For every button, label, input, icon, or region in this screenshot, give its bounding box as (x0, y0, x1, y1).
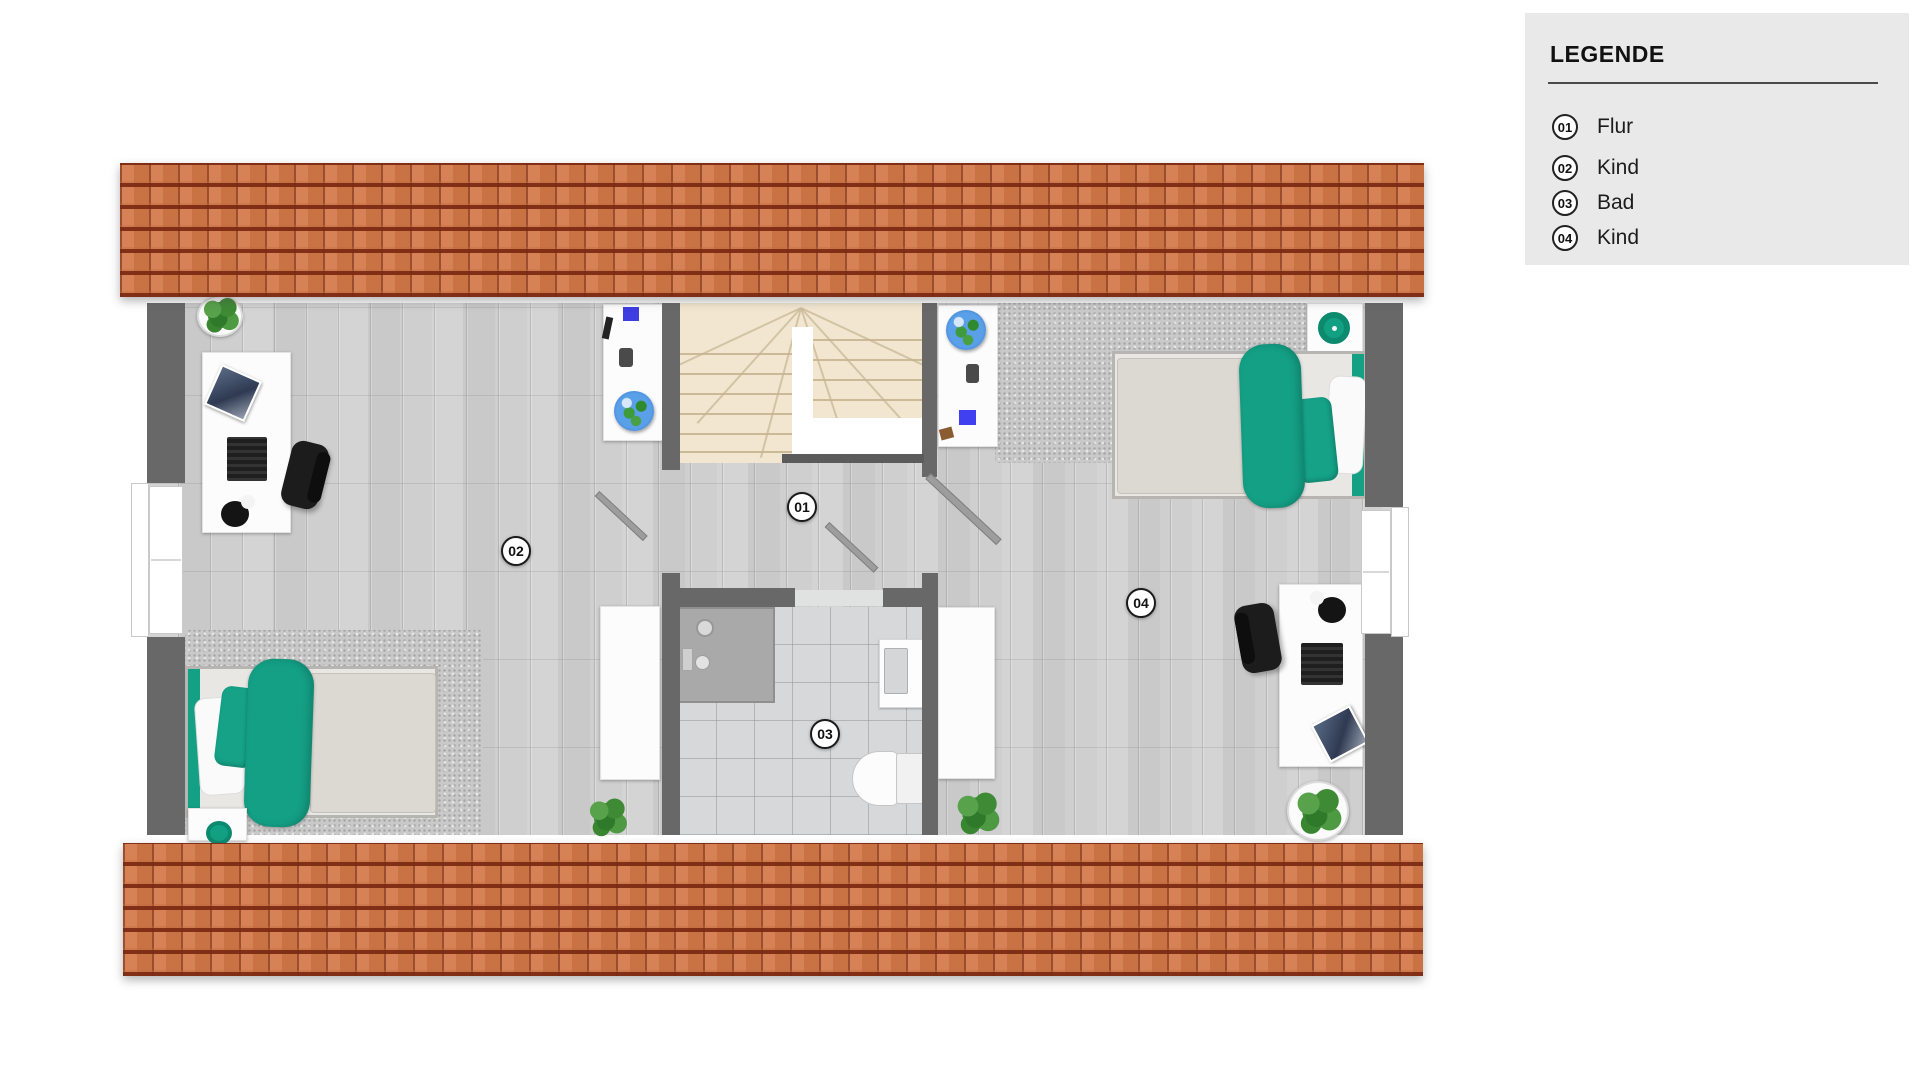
legend-number-badge: 01 (1552, 114, 1578, 140)
legend-item-bad: 03 Bad (1552, 190, 1634, 216)
legend-item-kind-1: 02 Kind (1552, 155, 1639, 181)
wall-left-bottom (147, 637, 185, 835)
bed-room-02 (185, 666, 438, 818)
stair-void (792, 327, 813, 463)
bed-room-04 (1112, 351, 1367, 499)
legend-number-badge: 04 (1552, 225, 1578, 251)
legend-item-kind-2: 04 Kind (1552, 225, 1639, 251)
room-marker-label: 02 (508, 543, 524, 559)
room-marker-label: 04 (1133, 595, 1149, 611)
nightstand-dot (1332, 326, 1337, 331)
shower-fixture-icon (682, 648, 693, 671)
pencil-case-icon (939, 427, 954, 441)
bed-mattress (310, 673, 436, 813)
wall-right-bottom (1365, 633, 1403, 835)
room-marker-label: 03 (817, 726, 833, 742)
bathroom-door-threshold (795, 590, 883, 606)
legend-divider (1548, 82, 1878, 84)
bed-blanket (243, 658, 315, 828)
legend-title: LEGENDE (1550, 41, 1665, 68)
sink-basin (884, 648, 908, 694)
wall-bathroom-left (662, 573, 680, 835)
desk-stair-right (938, 305, 998, 447)
legend-number-badge: 02 (1552, 155, 1578, 181)
room-marker-kind-left: 02 (501, 536, 531, 566)
bed-mattress (1117, 358, 1247, 494)
desk-lamp-shade (1310, 591, 1324, 605)
book-icon (623, 307, 639, 321)
plant-icon (200, 296, 242, 334)
wall-stairwell-right (922, 303, 937, 477)
legend-item-label: Kind (1597, 156, 1639, 180)
window-left (131, 483, 183, 637)
room-marker-bad: 03 (810, 719, 840, 749)
desk-room-04 (1279, 584, 1363, 767)
legend-item-label: Flur (1597, 115, 1633, 139)
wall-left-top (147, 303, 185, 483)
legend-item-label: Bad (1597, 191, 1634, 215)
legend-item-flur: 01 Flur (1552, 114, 1633, 140)
legend-panel: LEGENDE 01 Flur 02 Kind 03 Bad 04 Kind (1525, 13, 1909, 265)
wall-bathroom-right (922, 573, 938, 835)
wardrobe-room-04 (938, 607, 995, 779)
plant-icon (586, 796, 630, 838)
desk-lamp-shade (241, 495, 255, 509)
room-marker-label: 01 (794, 499, 810, 515)
wall-stairwell-left (662, 303, 680, 470)
wall-bathroom-top-right (883, 588, 922, 607)
magazine (204, 364, 262, 422)
bed-blanket (1238, 343, 1306, 509)
bathroom-sink (879, 639, 925, 708)
wall-bathroom-top-left (680, 588, 795, 607)
window-right (1361, 507, 1409, 637)
roof-top (120, 163, 1424, 297)
shower-head-icon (696, 619, 714, 637)
shower (678, 607, 775, 703)
magazine (1311, 705, 1370, 763)
pen-icon (602, 317, 613, 340)
globe-icon (614, 391, 654, 431)
floorplan-page: 01 02 03 04 LEGENDE 01 Flur 02 Kind 03 B… (0, 0, 1919, 1080)
desk-stair-left (603, 304, 663, 441)
pencil-cup-icon (619, 348, 633, 367)
wardrobe-room-02 (600, 606, 660, 780)
room-marker-kind-right: 04 (1126, 588, 1156, 618)
toilet-bowl (852, 751, 898, 806)
staircase (680, 303, 922, 463)
room-marker-flur: 01 (787, 492, 817, 522)
roof-bottom (123, 843, 1423, 976)
legend-number-badge: 03 (1552, 190, 1578, 216)
nightstand-room-04 (1307, 303, 1363, 356)
pencil-cup-icon (966, 364, 979, 383)
laptop (1301, 643, 1343, 685)
plant-icon (1293, 786, 1345, 836)
stair-railing (782, 454, 924, 463)
legend-item-label: Kind (1597, 226, 1639, 250)
laptop (227, 437, 267, 481)
shower-valve-icon (695, 655, 710, 670)
globe-icon (946, 310, 986, 350)
desk-room-02 (202, 352, 291, 533)
plant-icon (953, 790, 1003, 836)
nightstand-rug-room-02 (206, 821, 232, 845)
wall-right-top (1365, 303, 1403, 507)
book-icon (959, 410, 976, 425)
